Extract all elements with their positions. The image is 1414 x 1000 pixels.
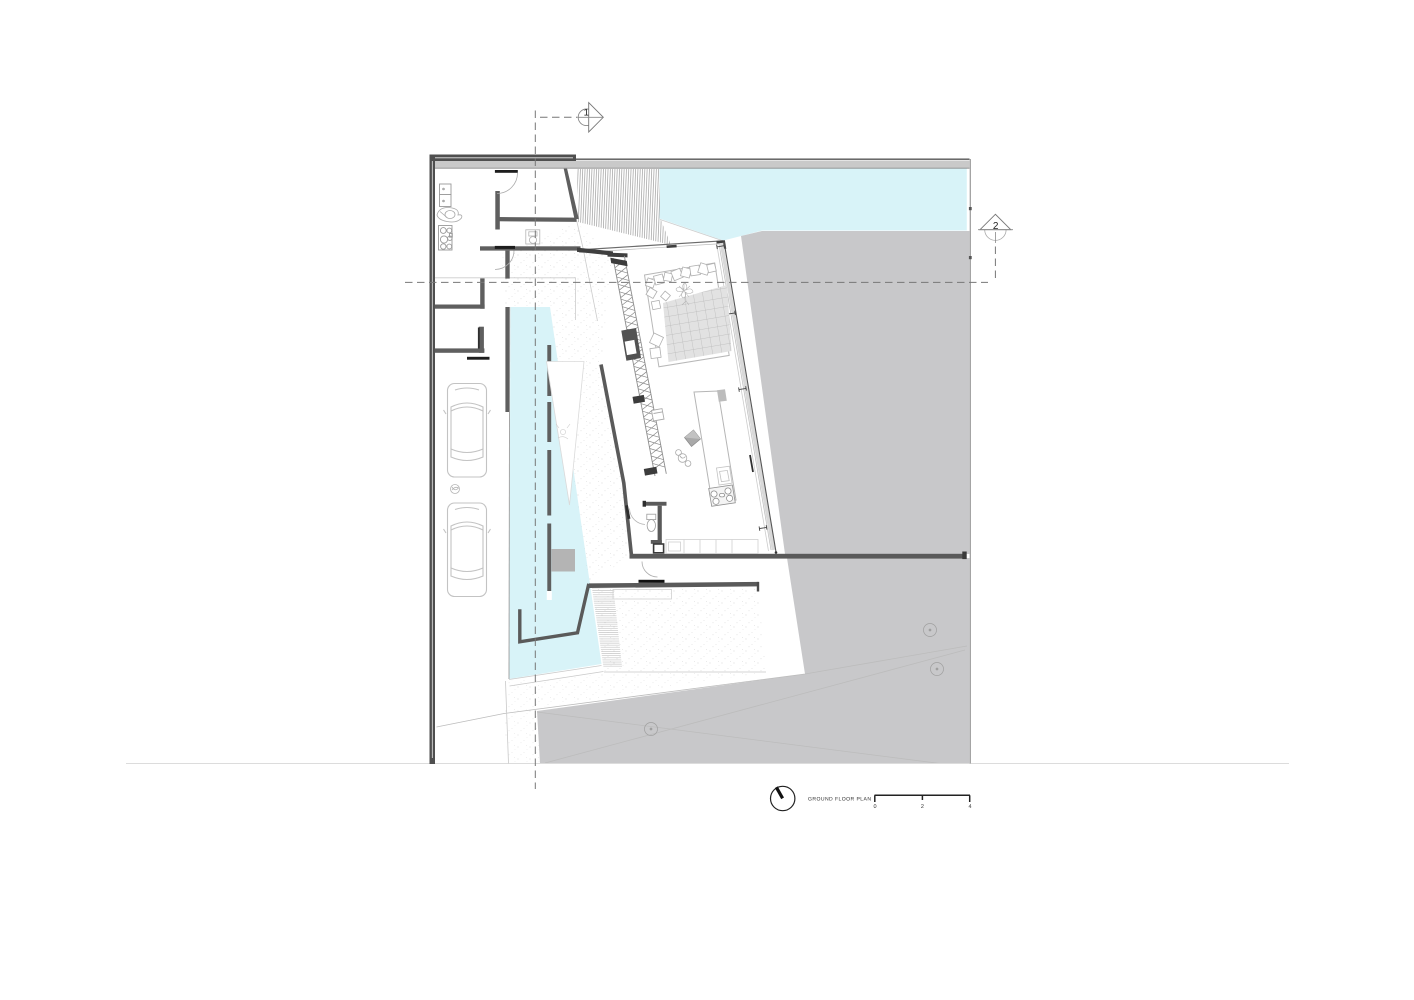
svg-text:1: 1: [584, 108, 589, 119]
svg-text:0: 0: [873, 804, 876, 810]
svg-text:4: 4: [968, 804, 971, 810]
svg-text:GROUND FLOOR PLAN: GROUND FLOOR PLAN: [808, 797, 871, 803]
svg-text:2: 2: [921, 804, 924, 810]
svg-text:2: 2: [993, 221, 999, 232]
